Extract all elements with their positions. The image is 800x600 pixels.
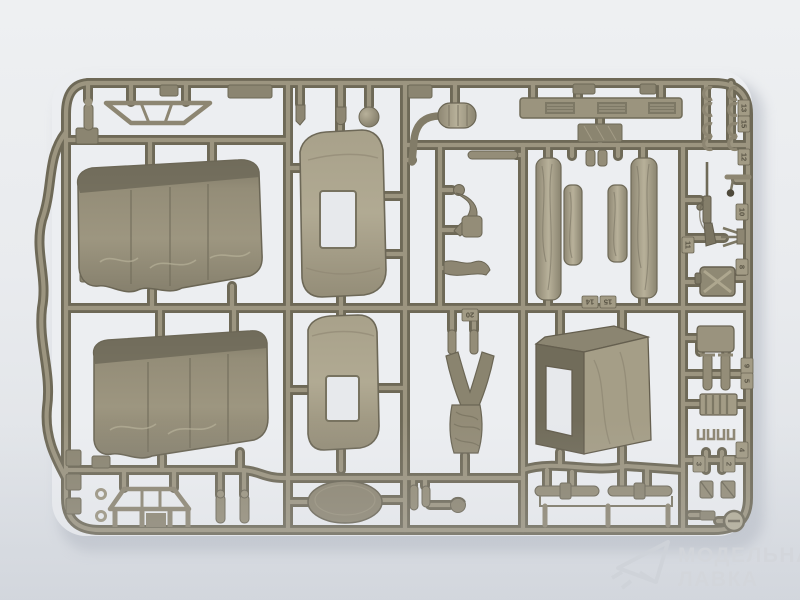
photo-of-model-kit-sprue: 13 15 12 10 11 8 9 5 4 3 2 14 15 20 МОДЕ…	[0, 0, 800, 600]
photo-vignette	[0, 0, 800, 600]
watermark-line-1: МОДЕЛЬНАЯ	[678, 544, 800, 567]
watermark-line-2: ЛАВКА	[678, 568, 759, 591]
sprue-photo-canvas: 13 15 12 10 11 8 9 5 4 3 2 14 15 20 МОДЕ…	[0, 0, 800, 600]
